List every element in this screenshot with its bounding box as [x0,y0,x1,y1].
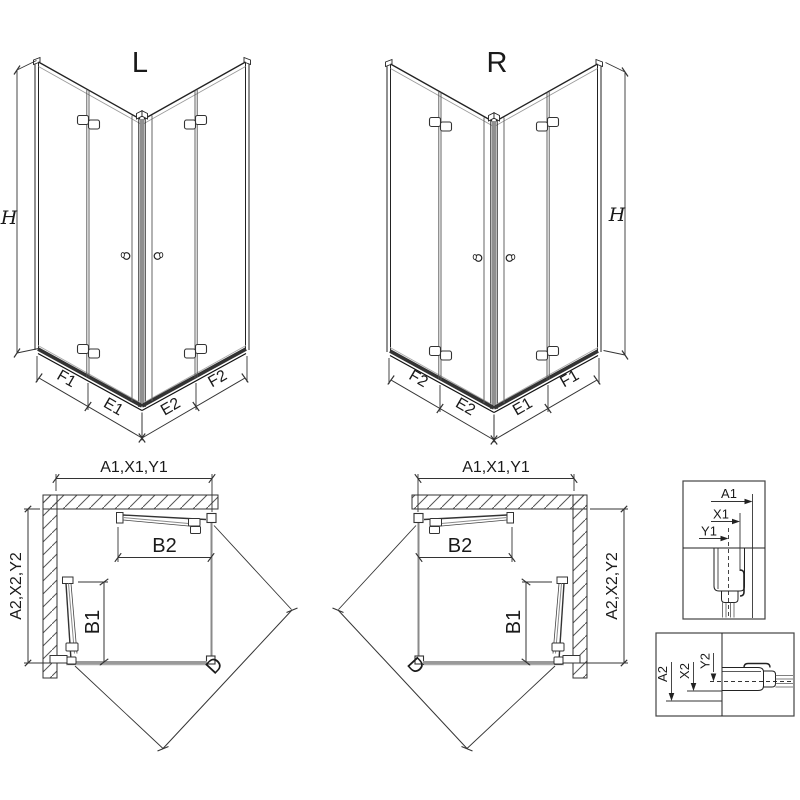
depth-dim-right-plan: A2,X2,Y2 [604,552,621,620]
detail-x1-label: X1 [713,507,729,522]
background [0,0,800,800]
wall-top-left-plan [43,495,218,509]
height-label-right: H [608,204,626,226]
height-label-left: H [0,207,18,229]
wall-side-right-plan [573,495,587,678]
width-dim-left-plan: A1,X1,Y1 [100,459,168,476]
depth-dim-left-plan: A2,X2,Y2 [8,552,25,620]
wall-top-right-plan [412,495,587,509]
detail-a2-label: A2 [655,666,670,682]
shower-enclosure-technical-drawing: L R H H F1 E1 E2 F2 F2 E2 E1 F1 A1,X1,Y1… [0,0,800,800]
drawing-canvas: L R H H F1 E1 E2 F2 F2 E2 E1 F1 A1,X1,Y1… [0,0,800,800]
detail-y2-label: Y2 [698,653,713,669]
variant-left-title: L [132,47,148,79]
door-top-dim-left-plan: B2 [152,535,176,557]
variant-right-title: R [487,47,508,79]
detail-y1-label: Y1 [701,524,717,539]
width-dim-right-plan: A1,X1,Y1 [462,459,530,476]
door-side-dim-right-plan: B1 [503,610,525,634]
wall-side-left-plan [43,495,57,678]
door-side-dim-left-plan: B1 [82,610,104,634]
detail-x2-label: X2 [677,663,692,679]
door-top-dim-right-plan: B2 [448,535,472,557]
detail-a1-label: A1 [721,486,737,501]
